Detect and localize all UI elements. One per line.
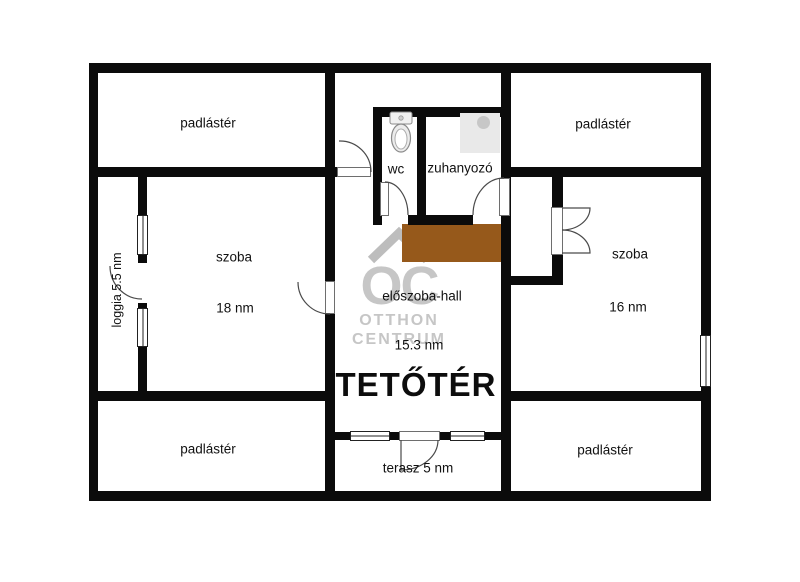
room-area-room-left: 18 nm (216, 301, 254, 316)
floor-title: TETŐTÉR (336, 366, 497, 404)
wall-segment (501, 167, 711, 177)
door-opening (399, 431, 440, 441)
wall-segment (89, 391, 335, 401)
room-label-loggia: loggia 5.5 nm (110, 252, 124, 327)
wall-segment (89, 167, 337, 177)
wall-segment (701, 63, 711, 501)
room-label-room-right: szoba (612, 247, 648, 262)
window (350, 431, 390, 441)
room-label-attic-bottom-left: padlástér (180, 442, 236, 457)
wall-segment (501, 391, 711, 401)
room-label-wc: wc (388, 162, 405, 177)
room-label-hall: előszoba-hall (382, 289, 462, 304)
door-leaf (499, 178, 510, 216)
wall-segment (138, 167, 147, 215)
room-label-room-left: szoba (216, 250, 252, 265)
watermark-logo: OC (361, 255, 438, 317)
door-opening (137, 263, 148, 303)
window (137, 308, 148, 347)
room-label-attic-top-right: padlástér (575, 117, 631, 132)
wall-segment (373, 107, 511, 117)
room-area-hall: 15.3 nm (395, 338, 444, 353)
window (137, 215, 148, 255)
room-label-terrace: terasz 5 nm (383, 461, 454, 476)
wall-segment (89, 491, 711, 501)
wall-segment (390, 432, 399, 440)
stairs-block (402, 224, 501, 262)
wall-segment (552, 167, 563, 207)
wall-segment (138, 255, 147, 263)
toilet-icon (390, 112, 412, 152)
wall-segment (485, 432, 511, 440)
double-door-arc (562, 208, 590, 230)
room-label-shower: zuhanyozó (427, 161, 492, 176)
wall-segment (552, 253, 563, 283)
wall-segment (440, 432, 450, 440)
wall-segment (335, 432, 350, 440)
shower-icon (460, 113, 500, 153)
wall-segment (417, 111, 426, 225)
door-leaf (337, 167, 371, 177)
wall-segment (373, 215, 382, 225)
room-label-attic-bottom-right: padlástér (577, 443, 633, 458)
door-leaf (380, 182, 389, 216)
watermark-line1: OTTHON (359, 312, 439, 330)
door-leaf (551, 207, 563, 255)
wall-segment (408, 215, 473, 225)
wall-segment (89, 63, 98, 501)
double-door-arc (562, 230, 590, 253)
window (700, 335, 711, 387)
wall-segment (138, 347, 147, 400)
wall-segment (89, 63, 710, 73)
room-area-room-right: 16 nm (609, 300, 647, 315)
room-label-attic-top-left: padlástér (180, 116, 236, 131)
window (450, 431, 485, 441)
floor-plan: OC OTTHON CENTRUM (0, 0, 800, 582)
door-leaf (325, 281, 335, 314)
